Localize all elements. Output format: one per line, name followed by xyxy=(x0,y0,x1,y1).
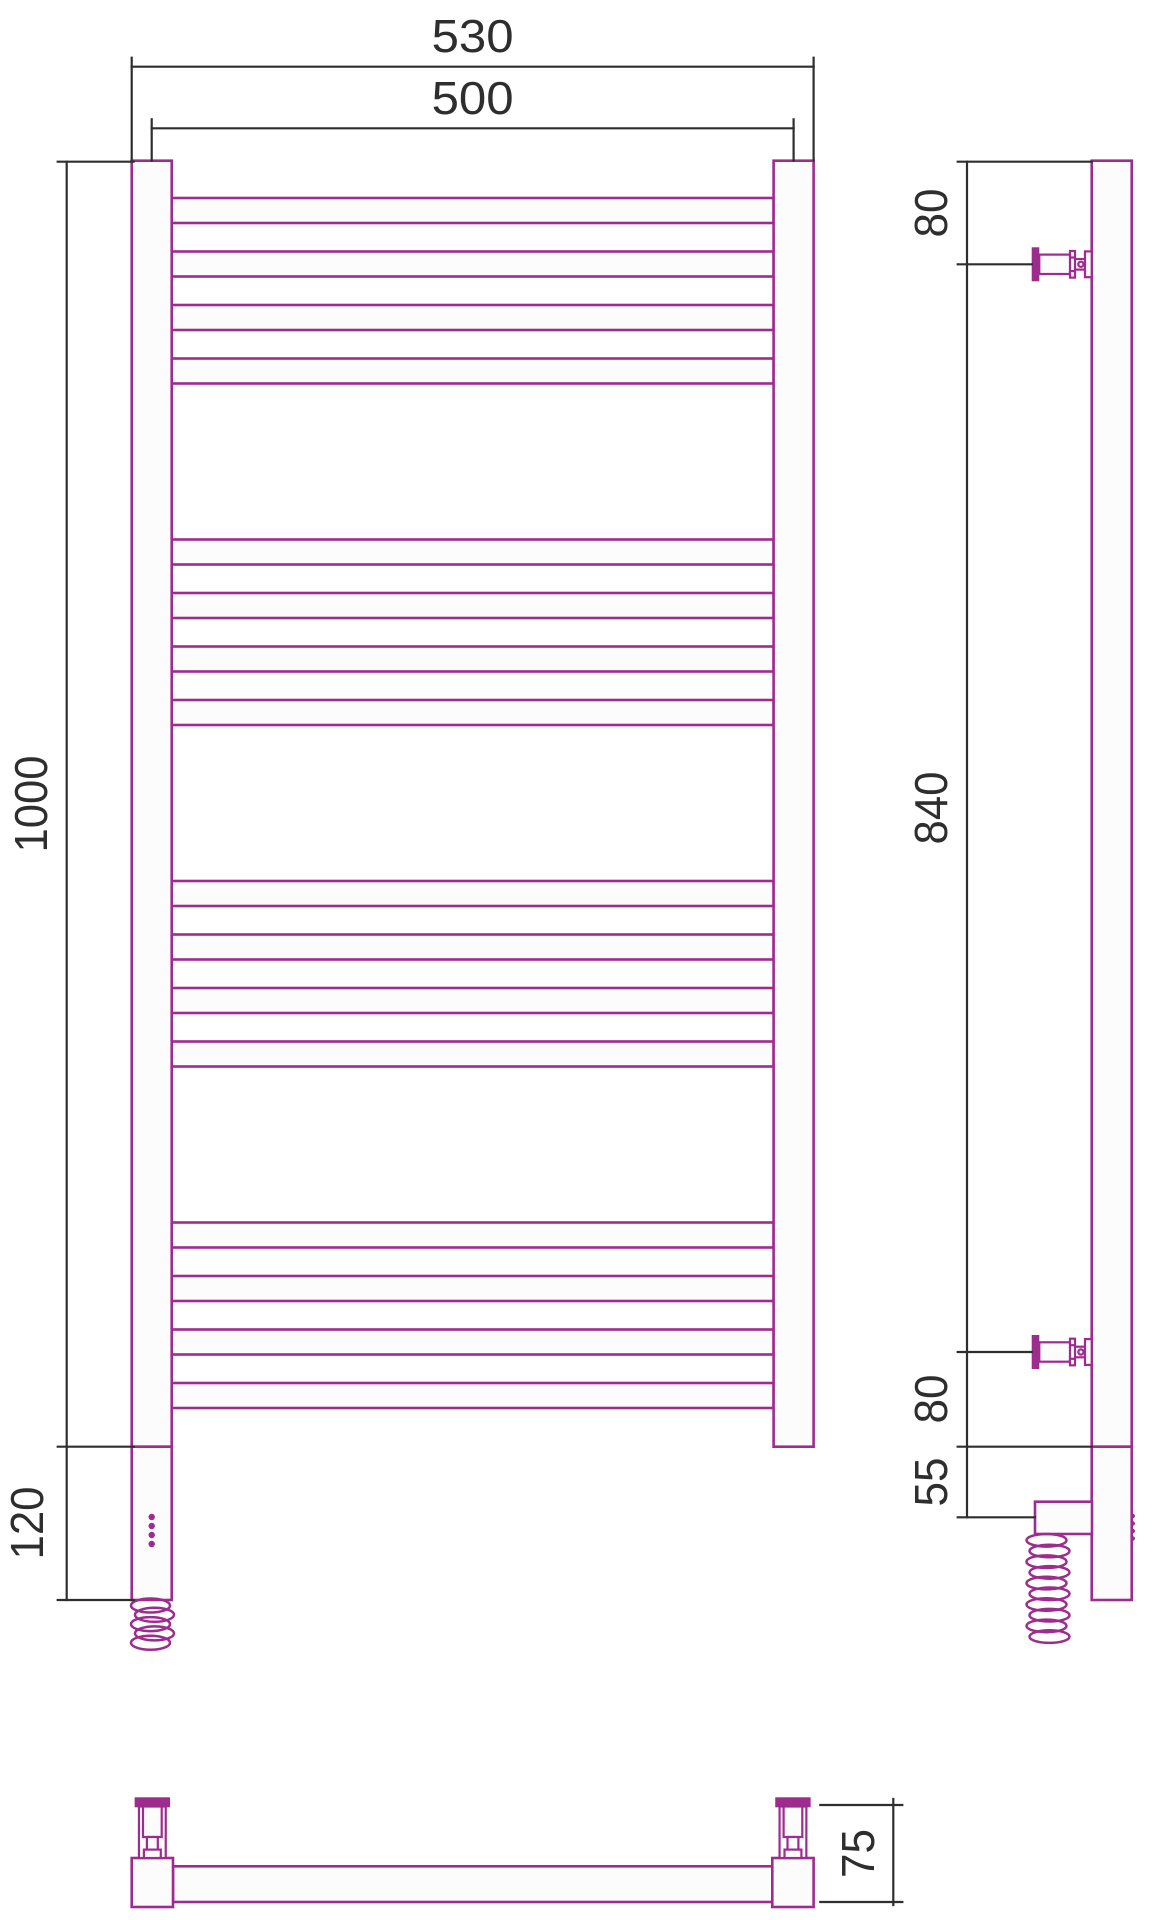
technical-drawing-page: 530 500 1000 120 xyxy=(0,0,1153,1920)
right-collector-tube xyxy=(774,161,814,1447)
dimension-label-80-bottom: 80 xyxy=(905,1375,957,1424)
side-dimensions: 80 840 80 55 xyxy=(905,162,1092,1518)
rung xyxy=(172,1383,774,1408)
wall-bracket-top xyxy=(1032,247,1092,281)
heater-block-side xyxy=(1035,1502,1092,1534)
rung xyxy=(172,252,774,277)
rung xyxy=(172,881,774,906)
dimension-axis-spacing: 500 xyxy=(152,72,794,161)
rung xyxy=(172,700,774,725)
power-cable-coil-side xyxy=(1027,1534,1070,1643)
rung xyxy=(172,593,774,618)
bottom-dimensions: 75 xyxy=(820,1799,902,1905)
dimension-label-530: 530 xyxy=(432,10,514,62)
dimension-label-840: 840 xyxy=(905,772,957,845)
dimension-label-1000: 1000 xyxy=(5,756,57,853)
rung xyxy=(172,359,774,384)
power-cable-coil-front xyxy=(131,1599,174,1650)
dimension-label-55: 55 xyxy=(905,1458,957,1507)
rung xyxy=(172,1276,774,1301)
side-view xyxy=(1027,161,1136,1643)
dimension-label-120: 120 xyxy=(1,1487,53,1560)
cable-coil-loop xyxy=(131,1636,170,1650)
horizontal-tube-plan xyxy=(173,1866,772,1902)
rung xyxy=(172,1042,774,1067)
rung xyxy=(172,1223,774,1248)
mount-bracket-right-plan xyxy=(775,1797,810,1858)
heater-housing-side xyxy=(1092,1447,1132,1600)
mount-bracket-left-plan xyxy=(135,1797,170,1858)
dimension-label-75: 75 xyxy=(832,1829,884,1878)
dimension-height: 1000 120 xyxy=(1,162,134,1600)
dimension-label-500: 500 xyxy=(432,72,514,124)
rung xyxy=(172,1330,774,1355)
rung xyxy=(172,305,774,330)
rung xyxy=(172,540,774,565)
rung xyxy=(172,647,774,672)
wall-bracket-bottom xyxy=(1032,1335,1092,1369)
dimension-label-80-top: 80 xyxy=(905,189,957,238)
front-dimensions: 530 500 1000 120 xyxy=(1,10,814,1600)
front-view xyxy=(131,161,814,1650)
towel-rail-dimensional-drawing: 530 500 1000 120 xyxy=(0,0,1153,1920)
left-collector-tube xyxy=(132,161,172,1447)
rung xyxy=(172,988,774,1013)
rung xyxy=(172,198,774,223)
left-collector-plan xyxy=(132,1858,173,1907)
rung-group xyxy=(172,198,774,1408)
bottom-view xyxy=(132,1797,814,1907)
right-collector-plan xyxy=(772,1858,813,1907)
rung xyxy=(172,935,774,960)
collector-tube-side xyxy=(1092,161,1132,1447)
